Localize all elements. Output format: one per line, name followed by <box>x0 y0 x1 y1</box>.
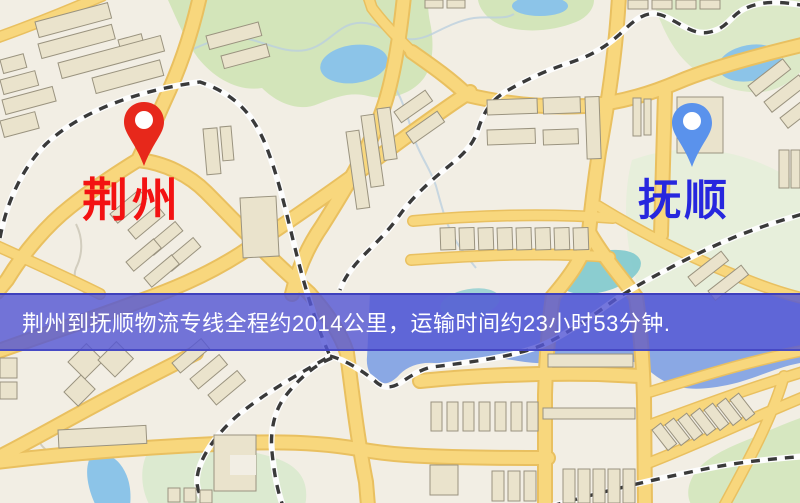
route-info-text: 荆州到抚顺物流专线全程约2014公里，运输时间约23小时53分钟. <box>0 306 671 338</box>
origin-pin-icon[interactable] <box>122 100 166 168</box>
basemap <box>0 0 800 503</box>
destination-city-label: 抚顺 <box>638 180 730 223</box>
route-info-banner: 荆州到抚顺物流专线全程约2014公里，运输时间约23小时53分钟. <box>0 293 800 351</box>
destination-pin-icon[interactable] <box>670 101 714 169</box>
map-canvas[interactable]: 荆州 抚顺 荆州到抚顺物流专线全程约2014公里，运输时间约23小时53分钟. <box>0 0 800 503</box>
origin-city-label: 荆州 <box>82 177 182 223</box>
